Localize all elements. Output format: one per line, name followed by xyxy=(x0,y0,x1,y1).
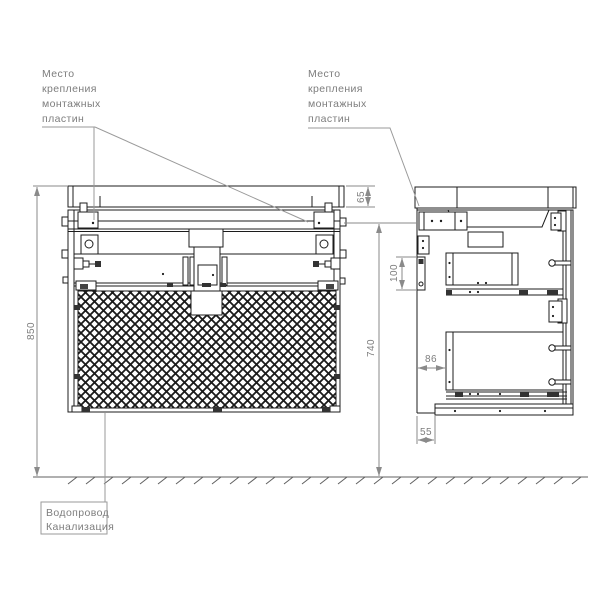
dim-back-clearance: 86 xyxy=(425,354,437,365)
side-view xyxy=(415,187,576,415)
label-line: Водопровод xyxy=(46,507,109,519)
dim-worktop-height: 65 xyxy=(356,191,367,203)
label-line: пластин xyxy=(42,113,84,125)
ground-line xyxy=(33,477,588,484)
label-line: Место xyxy=(308,68,341,80)
label-line: монтажных xyxy=(308,98,367,110)
vanity-installation-drawing: Место крепления монтажных пластин Место … xyxy=(0,0,600,600)
side-mounting-plate xyxy=(419,212,467,230)
label-line: Канализация xyxy=(46,521,114,533)
label-line: Место xyxy=(42,68,75,80)
wall-bracket xyxy=(417,236,429,290)
cam-lock-left xyxy=(81,235,98,254)
worktop-side xyxy=(415,187,576,208)
dim-cabinet-height: 740 xyxy=(366,339,377,357)
label-line: крепления xyxy=(308,83,363,95)
dim-total-height: 850 xyxy=(26,322,37,340)
label-mounting-plates-side: Место крепления монтажных пластин xyxy=(308,68,367,125)
worktop-front xyxy=(68,186,344,207)
label-line: монтажных xyxy=(42,98,101,110)
label-line: пластин xyxy=(308,113,350,125)
label-mounting-plates-front: Место крепления монтажных пластин xyxy=(42,68,101,125)
cam-lock-right xyxy=(316,235,333,254)
upper-drawer-section xyxy=(446,253,563,295)
front-top-bracket xyxy=(551,211,566,231)
label-line: крепления xyxy=(42,83,97,95)
dim-wall-bracket-height: 100 xyxy=(389,264,400,282)
front-mid-bracket xyxy=(549,299,567,323)
label-utilities: Водопровод Канализация xyxy=(46,507,114,533)
dim-bottom-recess: 55 xyxy=(420,427,432,438)
lower-drawer-section xyxy=(446,332,567,399)
